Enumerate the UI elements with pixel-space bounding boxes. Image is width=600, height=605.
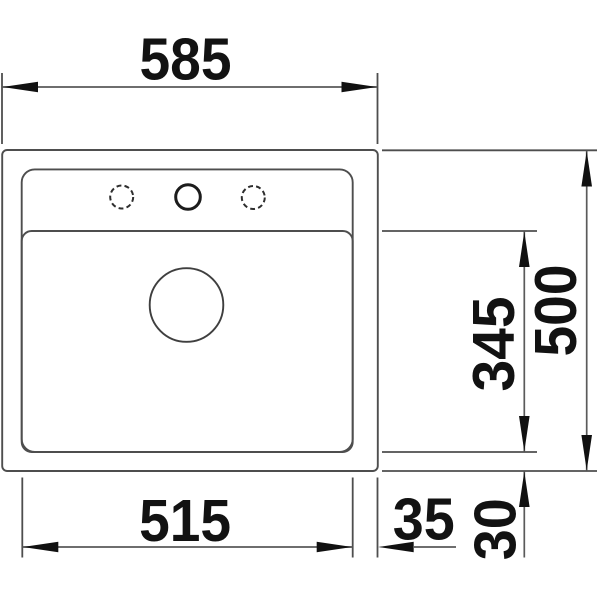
svg-text:30: 30 <box>462 498 528 560</box>
svg-text:585: 585 <box>140 27 232 93</box>
svg-text:35: 35 <box>393 487 455 553</box>
svg-text:515: 515 <box>139 488 231 554</box>
svg-text:500: 500 <box>523 265 589 357</box>
svg-text:345: 345 <box>461 297 527 392</box>
